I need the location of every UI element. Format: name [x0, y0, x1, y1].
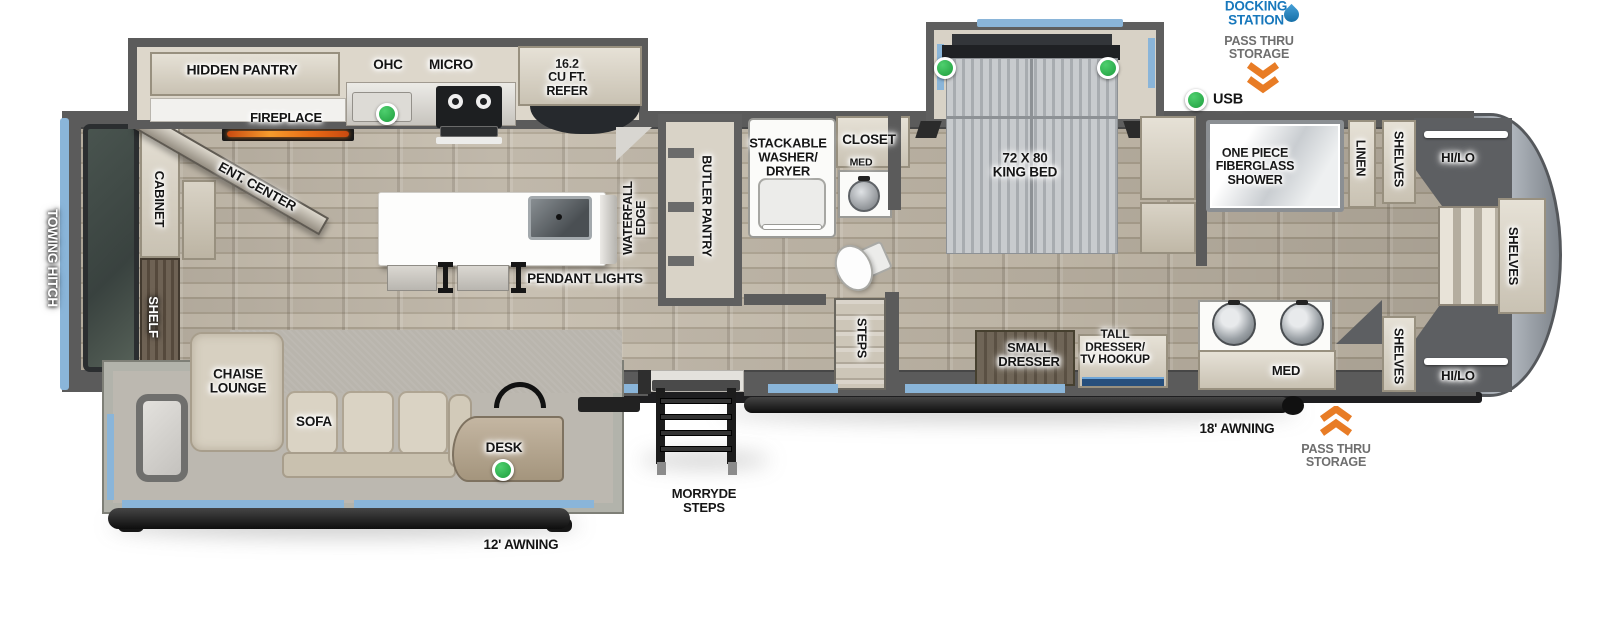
label-morryde-steps: MORRYDE STEPS [672, 487, 737, 515]
label-hidden-pantry: HIDDEN PANTRY [187, 63, 298, 78]
front-closet-shelves [1438, 206, 1500, 306]
hi-lo-rod-bottom [1424, 358, 1508, 365]
label-usb: USB [1213, 92, 1243, 107]
living-slide-window [136, 394, 188, 482]
sofa-cushion [398, 391, 448, 455]
label-ohc: OHC [373, 58, 402, 72]
vanity-sink [1280, 302, 1324, 346]
label-waterfall-edge: WATERFALL EDGE [622, 181, 649, 255]
label-awning-18: 18' AWNING [1200, 422, 1275, 436]
window-strip [768, 384, 838, 393]
label-pendant-lights: PENDANT LIGHTS [527, 272, 643, 286]
bath-faucet [858, 176, 870, 181]
awning-bracket [578, 397, 640, 412]
bath-bedroom-wall [888, 114, 901, 210]
morryde-step-foot [657, 462, 666, 475]
label-cabinet: CABINET [152, 171, 166, 227]
morryde-step-tread [660, 398, 732, 404]
bedroom-slide-accent [977, 19, 1123, 27]
morryde-step-tread [660, 446, 732, 452]
label-med-bathroom: MED [850, 157, 873, 168]
label-butler-pantry: BUTLER PANTRY [699, 155, 712, 257]
label-towing-hitch: TOWING HITCH [45, 209, 59, 307]
living-slide-accent-left [107, 414, 114, 500]
pendant-light-fixture [511, 262, 526, 293]
entry-door-frame [638, 370, 651, 394]
sofa-cushion [342, 391, 394, 455]
pantry-shelf [668, 256, 694, 266]
bath-bottom-wall [744, 294, 826, 305]
washer-drum [758, 178, 826, 230]
label-pass-thru-storage-bottom: PASS THRU STORAGE [1301, 443, 1371, 470]
tv-hookup-strip [1082, 377, 1164, 386]
fireplace-flame [227, 131, 349, 137]
awning-12ft [108, 508, 570, 529]
label-awning-12: 12' AWNING [484, 538, 559, 552]
exterior-usb-green-dot [1185, 89, 1207, 111]
island-faucet [556, 214, 562, 220]
cooktop-burner [476, 94, 491, 109]
bed-right-usb-green-dot [1097, 57, 1119, 79]
morryde-step-foot [728, 462, 737, 475]
double-chevron-up-icon [1318, 406, 1354, 438]
bedroom-cabinet [1140, 202, 1196, 254]
label-shelves-front: SHELVES [1506, 227, 1520, 285]
pendant-light-fixture [438, 262, 453, 293]
label-hi-lo-top: HI/LO [1441, 151, 1475, 165]
bedroom-window-right [1148, 38, 1155, 88]
bed-left-usb-green-dot [934, 57, 956, 79]
label-micro: MICRO [429, 58, 473, 72]
label-sofa: SOFA [296, 415, 332, 429]
vanity-faucet [1296, 300, 1308, 305]
living-slide-accent-bottom [354, 500, 594, 508]
label-king-bed: 72 X 80 KING BED [993, 152, 1057, 181]
island-waterfall-side [600, 195, 617, 264]
bar-stool [457, 265, 509, 291]
washer-door-line [762, 224, 822, 230]
kitchen-counter-usb-green-dot [376, 103, 398, 125]
rear-wall [69, 114, 81, 392]
hi-lo-rod-top [1424, 131, 1508, 138]
window-strip [905, 384, 1065, 393]
steps-right-wall [885, 292, 899, 392]
rear-accent-stripe [60, 118, 69, 390]
double-chevron-down-icon [1245, 62, 1281, 94]
pantry-shelf [668, 202, 694, 212]
label-med-vanity: MED [1272, 364, 1300, 378]
label-steps: STEPS [854, 318, 867, 358]
floorplan-canvas: DOCKING STATIONPASS THRU STORAGEUSBHIDDE… [0, 0, 1600, 626]
sofa-seat [282, 452, 456, 478]
label-shower: ONE PIECE FIBERGLASS SHOWER [1216, 147, 1295, 187]
rear-window [83, 124, 139, 372]
bedroom-wardrobe [1140, 116, 1196, 200]
label-hi-lo-bottom: HI/LO [1441, 369, 1475, 383]
cooktop [436, 86, 502, 128]
label-fireplace: FIREPLACE [250, 111, 322, 125]
label-chaise-lounge: CHAISE LOUNGE [210, 368, 267, 397]
label-desk: DESK [486, 441, 523, 455]
range-base [436, 137, 502, 144]
label-shelves-bottom: SHELVES [1391, 328, 1404, 384]
label-small-dresser: SMALL DRESSER [998, 341, 1059, 369]
label-shelf: SHELF [146, 296, 160, 338]
living-room-carpet [230, 330, 622, 393]
label-tall-dresser: TALL DRESSER/ TV HOOKUP [1080, 328, 1150, 366]
awning-18ft [744, 397, 1290, 413]
bar-stool [387, 265, 437, 291]
desk-usb-green-dot [492, 459, 514, 481]
vanity-cabinet [1198, 350, 1336, 390]
pantry-shelf [668, 148, 694, 158]
morryde-step-tread [660, 430, 732, 436]
morryde-step-tread [660, 414, 732, 420]
label-docking-station: DOCKING STATION [1225, 0, 1287, 28]
rear-drawers [182, 180, 216, 260]
vanity-sink [1212, 302, 1256, 346]
living-slide-accent-bottom [122, 500, 344, 508]
label-stackable-washer-dryer: STACKABLE WASHER/ DRYER [749, 136, 826, 177]
vanity-faucet [1228, 300, 1240, 305]
label-linen: LINEN [1353, 140, 1366, 177]
cooktop-burner [448, 94, 463, 109]
label-closet: CLOSET [842, 133, 896, 147]
label-refer: 16.2 CU FT. REFER [546, 58, 587, 98]
bath-sink [848, 180, 880, 212]
range-grill [440, 126, 498, 137]
label-pass-thru-storage-top: PASS THRU STORAGE [1224, 35, 1294, 62]
label-shelves-top: SHELVES [1391, 131, 1404, 187]
awning-18ft-endcap [1282, 396, 1304, 415]
